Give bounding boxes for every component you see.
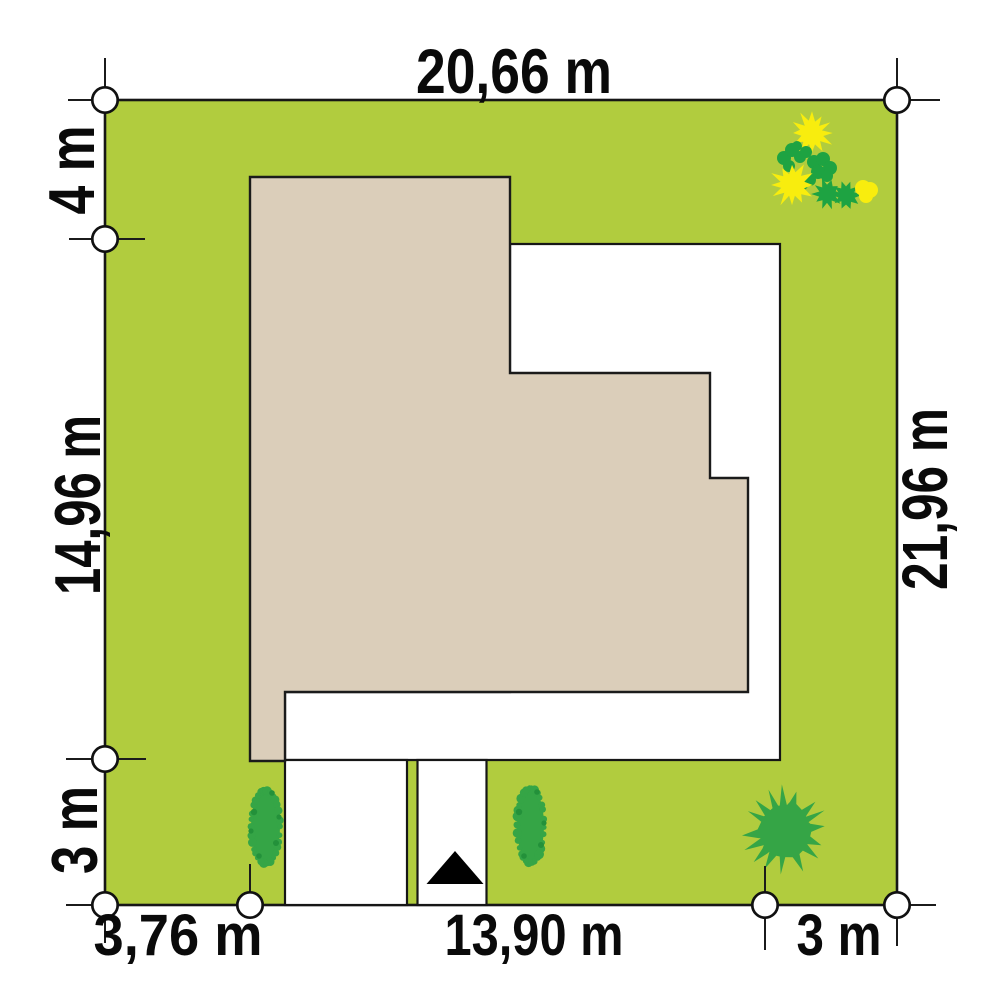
svg-text:4 m: 4 m [35,126,108,215]
svg-text:3,76 m: 3,76 m [94,903,263,968]
svg-text:20,66 m: 20,66 m [416,37,612,107]
svg-text:13,90 m: 13,90 m [445,903,624,968]
svg-text:3 m: 3 m [38,786,111,874]
svg-text:14,96 m: 14,96 m [41,415,114,595]
svg-text:21,96 m: 21,96 m [889,408,961,590]
svg-text:3 m: 3 m [797,903,882,968]
